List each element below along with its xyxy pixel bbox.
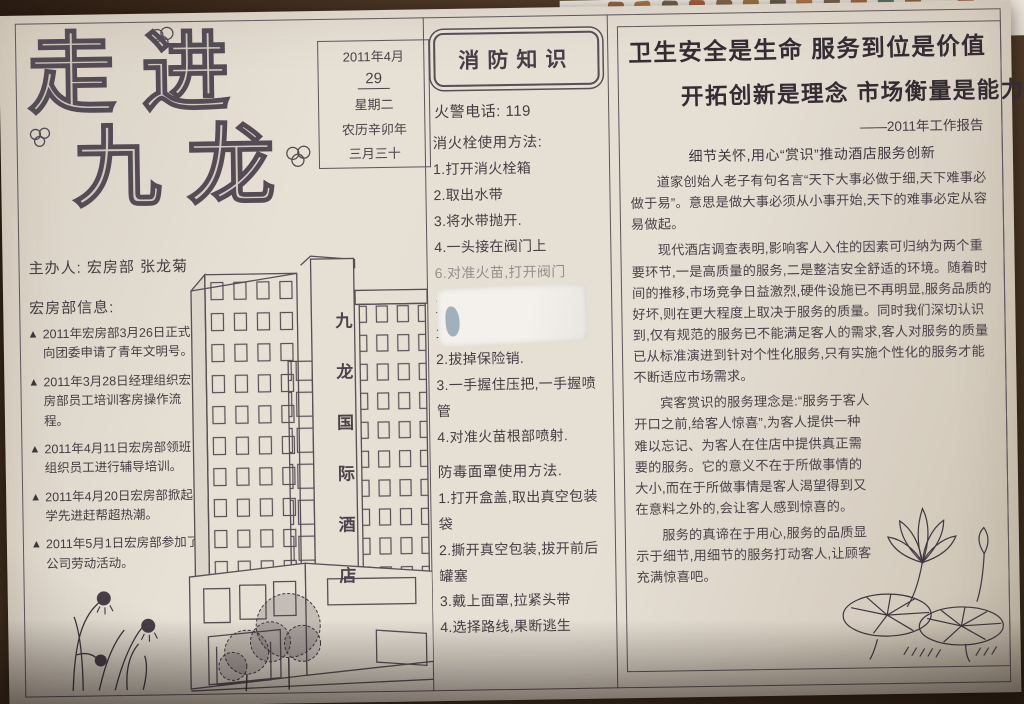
news-item: ▲2011年4月20日宏房部掀起学先进赶帮超热潮。 [30,485,203,526]
hydrant-step: 2.取出水带 [433,180,605,209]
date-day: 29 [357,70,390,90]
hydrant-section: 消火栓使用方法: 1.打开消火栓箱 2.取出水带 3.将水带抛开. 4.一头接在… [433,129,607,286]
triangle-bullet-icon: ▲ [30,489,41,506]
info-heading: 宏房部信息: [29,296,114,318]
news-bullet-list: ▲2011年宏房部3月26日正式向团委申请了青年文明号。 ▲2011年3月28日… [27,323,203,584]
news-item-text: 2011年5月1日宏房部参加了公司劳动活动。 [46,535,199,571]
organizer-line: 主办人: 宏房部 张龙菊 [28,255,188,279]
extinguisher-step: 3.一手握住压把,一手握喷管 [436,371,609,425]
triangle-bullet-icon: ▲ [28,374,39,391]
hydrant-step: 4.一头接在阀门上 [434,232,606,261]
news-item: ▲2011年4月11日宏房部领班组织员工进行辅导培训。 [29,438,202,479]
hydrant-title: 消火栓使用方法: [433,129,605,153]
correction-fluid-patch [436,283,588,347]
triangle-bullet-icon: ▲ [29,441,40,458]
triangle-bullet-icon: ▲ [31,537,42,554]
date-month: 2011年4月 [343,46,404,66]
date-lunar-year: 农历辛卯年 [342,118,407,138]
flower-doodle-icon [145,25,179,52]
extinguisher-step: 4.对准火苗根部喷射. [437,422,609,451]
essay-paragraph: 道家创始人老子有句名言“天下大事必做于细,天下难事必做于易”。意思是做大事必须从… [630,166,995,235]
news-item-text: 2011年3月28日经理组织宏房部员工培训客房操作流程。 [43,373,191,428]
essay-paragraph: 现代酒店调查表明,影响客人入住的因素可归纳为两个重要环节,一是高质量的服务,二是… [631,235,997,389]
fire-safety-header: 消防知识 [433,31,600,88]
hydrant-step: 3.将水带抛开. [434,206,606,235]
essay-column: 卫生安全是生命 服务到位是价值 开拓创新是理念 市场衡量是能力 ——2011年工… [617,20,1011,672]
hydrant-step: 1.打开消火栓箱 [433,154,605,183]
gas-mask-step: 2.撕开真空包装,拔开前后罐塞 [439,535,612,589]
news-item-text: 2011年4月20日宏房部掀起学先进赶帮超热潮。 [45,488,193,524]
date-weekday: 星期二 [354,94,393,114]
headline-line2: 开拓创新是理念 市场衡量是能力 [681,72,994,111]
news-item-text: 2011年宏房部3月26日正式向团委申请了青年文明号。 [43,325,194,361]
hydrant-step: 6.对准火苗,打开阀门 [435,258,607,287]
date-box: 2011年4月 29 星期二 农历辛卯年 三月三十 [317,39,431,169]
flower-doodle-icon [281,143,315,170]
gas-mask-title: 防毒面罩使用方法. [438,458,610,482]
lotus-sketch-icon [837,491,1008,666]
gas-mask-step: 1.打开盒盖,取出真空包装袋 [438,483,611,537]
gas-mask-step: 4.选择路线,果断逃生 [440,613,612,642]
fire-phone-line: 火警电话: 119 [434,99,602,123]
hand-drawn-newspaper: 走进 九龙 2011 [0,0,1021,704]
triangle-bullet-icon: ▲ [28,326,39,343]
headline-attribution: ——2011年工作报告 [629,114,983,140]
left-column: 走进 九龙 2011 [21,19,432,697]
news-item: ▲2011年5月1日宏房部参加了公司劳动活动。 [31,533,204,574]
news-item: ▲2011年3月28日经理组织宏房部员工培训客房操作流程。 [28,371,201,432]
building-drawing-icon [182,241,434,695]
news-item: ▲2011年宏房部3月26日正式向团委申请了青年文明号。 [27,323,200,364]
date-lunar-day: 三月三十 [349,142,401,162]
hotel-sketch: 九龙国际酒店 [182,241,434,695]
gas-mask-section: 防毒面罩使用方法. 1.打开盒盖,取出真空包装袋 2.撕开真空包装,拔开前后罐塞… [438,458,613,641]
flower-sketch-icon [38,579,190,693]
flower-doodle-icon [26,125,54,151]
headline-line1: 卫生安全是生命 服务到位是价值 [628,26,993,68]
photo-of-poster: 走进 九龙 2011 [0,0,1024,704]
gas-mask-step: 3.戴上面罩,拉紧头带 [440,587,612,616]
extinguisher-step: 2.拔掉保险销. [436,345,608,374]
hotel-sign-vertical-text: 九龙国际酒店 [312,268,360,661]
fire-safety-column: 消防知识 火警电话: 119 消火栓使用方法: 1.打开消火栓箱 2.取出水带 … [431,17,614,692]
masthead-title: 走进 九龙 [27,27,330,244]
news-item-text: 2011年4月11日宏房部领班组织员工进行辅导培训。 [44,440,191,476]
essay-subtitle: 细节关怀,用心“赏识”推动酒店服务创新 [630,141,994,167]
